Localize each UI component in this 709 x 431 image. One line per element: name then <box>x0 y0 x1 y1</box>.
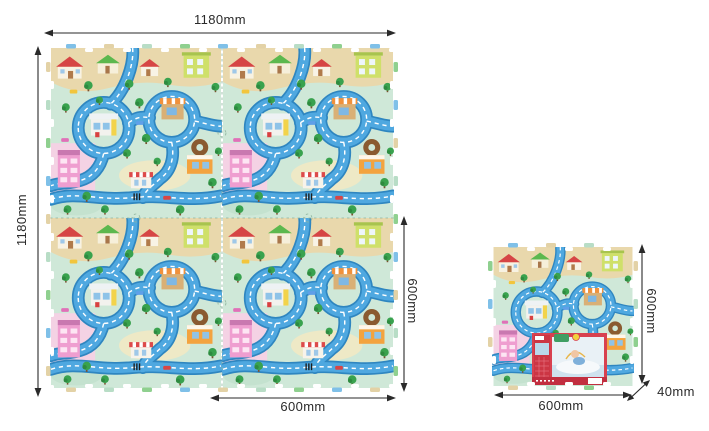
arrow-left-icon <box>494 392 503 399</box>
dimension-label-tile-thickness: 40mm <box>646 385 706 399</box>
arrow-right-icon <box>387 395 396 402</box>
arrow-right-icon <box>387 30 396 37</box>
packaging-overlay <box>532 333 607 385</box>
dimension-line-large-height <box>33 46 43 397</box>
product-dimension-diagram: 1180mm 1180mm 600mm 600mm 600mm 600mm 40… <box>0 0 709 431</box>
arrow-left-icon <box>210 395 219 402</box>
dimension-line-large-width <box>44 28 396 38</box>
arrow-down-icon <box>401 383 408 392</box>
large-mat-illustration <box>45 43 399 393</box>
dimension-label-large-tile-height: 600mm <box>405 251 419 351</box>
dimension-label-large-tile-width: 600mm <box>243 400 363 414</box>
dimension-label-large-height: 1180mm <box>15 160 29 280</box>
arrow-left-icon <box>44 30 53 37</box>
single-tile-illustration <box>487 242 639 391</box>
dimension-label-tile-height: 600mm <box>644 261 658 361</box>
arrow-up-icon <box>401 216 408 225</box>
arrow-down-icon <box>35 388 42 397</box>
dimension-label-large-width: 1180mm <box>160 13 280 27</box>
dimension-label-tile-width: 600mm <box>501 399 621 413</box>
arrow-up-icon <box>35 46 42 55</box>
arrow-up-icon <box>639 244 646 253</box>
